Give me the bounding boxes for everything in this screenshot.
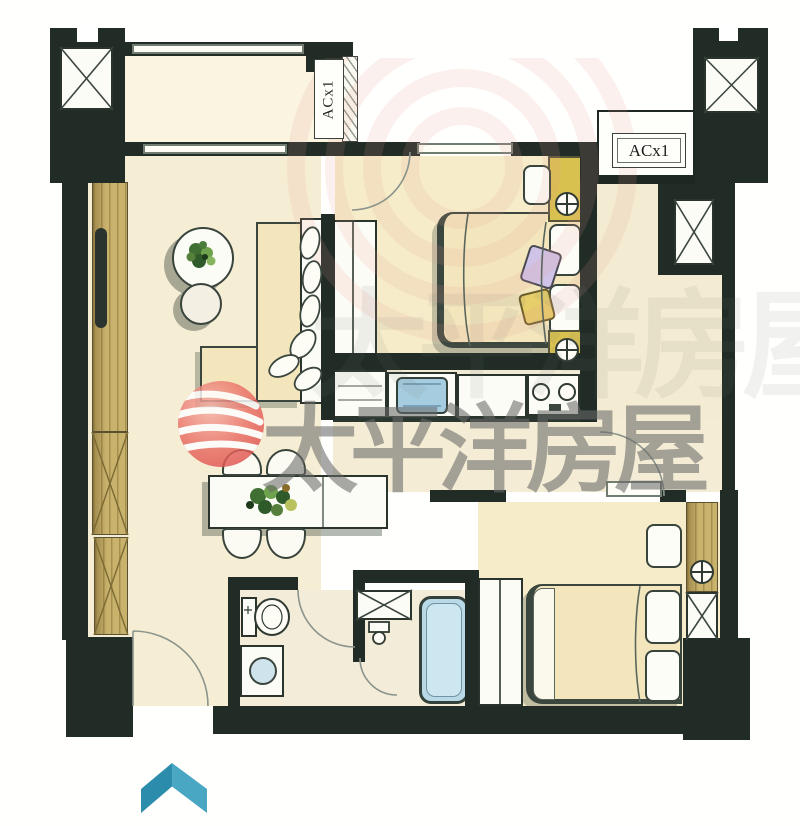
bedroom2-table-lamp: [646, 524, 682, 568]
bathtub-inner: [426, 603, 462, 697]
console-cabinet-2: [94, 537, 128, 635]
tv-icon: [95, 228, 107, 328]
bedroom2-side-cabinet: [686, 502, 718, 592]
balcony-window: [132, 44, 304, 54]
ac-label-top: ACx1: [314, 59, 344, 139]
balcony-sliding-door: [143, 144, 287, 154]
wall-bathroom-top-b: [353, 570, 479, 583]
bedroom1-window: [417, 143, 513, 154]
column-top-right-notch: [719, 28, 738, 41]
ac-label-top-text: ACx1: [321, 79, 338, 119]
bedroom2-wardrobe-divider: [499, 580, 501, 704]
elevator-shaft-icon: [704, 57, 759, 113]
north-arrow-icon: [141, 763, 207, 813]
wall-bedroom1-top-left: [356, 142, 420, 156]
wall-tubroom-right: [465, 570, 478, 707]
vanity-mirror-cabinet: [356, 590, 412, 620]
ac-duct-hatch: [342, 56, 358, 142]
bedroom2-wardrobe: [478, 578, 523, 706]
washing-machine-door: [249, 657, 277, 685]
coffee-table-small: [180, 283, 222, 325]
watermark-text: 太平洋房屋: [262, 372, 702, 511]
bedroom2-blanket-fold: [533, 588, 555, 700]
floor-plan-canvas: ACx1 ACx1: [0, 0, 800, 826]
wall-bathroom-top-a: [228, 577, 298, 590]
bedroom2-pillow: [645, 650, 681, 702]
bedroom1-table-lamp: [523, 165, 551, 205]
bedroom2-pillow: [645, 590, 681, 644]
wall-left-exterior: [62, 150, 88, 640]
wall-bottom: [213, 706, 748, 734]
column-top-left-notch: [77, 28, 98, 42]
coffee-table-large: [172, 227, 234, 289]
wall-right-bedroom2: [720, 490, 738, 645]
console-cabinet-1: [92, 432, 128, 535]
wall-bathroom-left: [228, 577, 240, 707]
toilet-tank: [241, 597, 257, 637]
ac-label-right: ACx1: [612, 133, 686, 168]
elevator-shaft-icon: [60, 47, 113, 110]
ac-label-right-text: ACx1: [629, 141, 670, 161]
bedroom2-side-cabinet-low: [686, 592, 718, 640]
column-bottom-left: [66, 637, 133, 737]
